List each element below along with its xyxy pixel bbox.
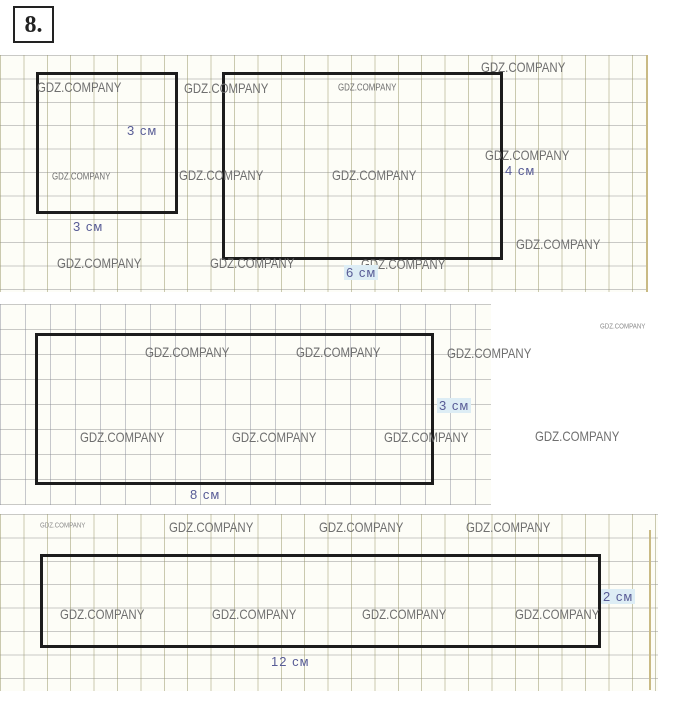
dim-label-rect12x2-height: 2 см — [601, 589, 635, 604]
watermark-text: GDZ.COMPANY — [145, 344, 229, 360]
watermark-text: GDZ.COMPANY — [466, 519, 550, 535]
watermark-text: GDZ.COMPANY — [184, 80, 268, 96]
task-number-box: 8. — [13, 6, 54, 43]
watermark-text: GDZ.COMPANY — [362, 606, 446, 622]
watermark-text: GDZ.COMPANY — [212, 606, 296, 622]
rect-6x4-outline — [222, 72, 503, 260]
dim-label-square-width: 3 см — [73, 219, 103, 234]
watermark-text: GDZ.COMPANY — [40, 522, 85, 530]
margin-line-bottom — [649, 530, 651, 690]
watermark-text: GDZ.COMPANY — [600, 323, 645, 331]
watermark-text: GDZ.COMPANY — [535, 428, 619, 444]
watermark-text: GDZ.COMPANY — [37, 79, 121, 95]
watermark-text: GDZ.COMPANY — [516, 236, 600, 252]
watermark-text: GDZ.COMPANY — [332, 167, 416, 183]
watermark-text: GDZ.COMPANY — [384, 429, 468, 445]
watermark-text: GDZ.COMPANY — [210, 255, 294, 271]
watermark-text: GDZ.COMPANY — [485, 147, 569, 163]
dim-label-rect8x3-width: 8 см — [190, 487, 220, 502]
watermark-text: GDZ.COMPANY — [169, 519, 253, 535]
rect-12x2-outline — [40, 554, 601, 648]
watermark-text: GDZ.COMPANY — [80, 429, 164, 445]
watermark-text: GDZ.COMPANY — [481, 59, 565, 75]
watermark-text: GDZ.COMPANY — [232, 429, 316, 445]
watermark-text: GDZ.COMPANY — [319, 519, 403, 535]
page-canvas: 8. GDZ.COMPANY GDZ.COMPANY GDZ.COMPANY G… — [0, 0, 679, 711]
dim-label-rect12x2-width: 12 см — [271, 654, 310, 669]
dim-label-rect8x3-height: 3 см — [437, 398, 471, 413]
watermark-text: GDZ.COMPANY — [60, 606, 144, 622]
watermark-text: GDZ.COMPANY — [296, 344, 380, 360]
watermark-text: GDZ.COMPANY — [515, 606, 599, 622]
watermark-text: GDZ.COMPANY — [338, 82, 396, 93]
watermark-text: GDZ.COMPANY — [57, 255, 141, 271]
task-number: 8. — [25, 13, 43, 37]
dim-label-rect6x4-height: 4 см — [505, 163, 535, 178]
dim-label-square-height: 3 см — [127, 123, 157, 138]
watermark-text: GDZ.COMPANY — [179, 167, 263, 183]
watermark-text: GDZ.COMPANY — [447, 345, 531, 361]
margin-line-top — [646, 55, 648, 292]
watermark-text: GDZ.COMPANY — [52, 171, 110, 182]
dim-label-rect6x4-width: 6 см — [344, 265, 378, 280]
